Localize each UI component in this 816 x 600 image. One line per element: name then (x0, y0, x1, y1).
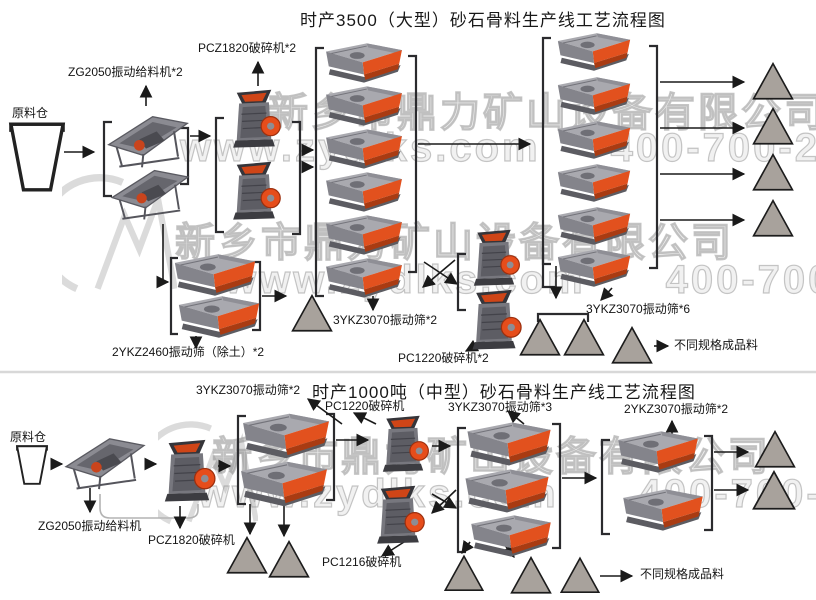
vibrating-screen (238, 460, 330, 508)
label-screen-2deck: 3YKZ3070振动筛*2 (196, 384, 300, 398)
label-secondary-crusher: PC1220破碎机*2 (398, 352, 489, 366)
vibrating-screen (548, 32, 640, 72)
vibrating-screen (548, 120, 640, 160)
stockpile-icon (752, 470, 796, 510)
stockpile-icon (290, 294, 334, 332)
label-secondary-crusher: PC1220破碎机 (325, 400, 404, 414)
stockpile-icon (560, 556, 600, 594)
vibrating-screen (176, 294, 262, 340)
vibrating-screen (320, 128, 408, 170)
vibrating-screen (548, 76, 640, 116)
stockpile-icon (752, 153, 794, 191)
stockpile-icon (444, 554, 484, 592)
stockpile-icon (518, 318, 562, 356)
vibrating-screen (320, 171, 408, 213)
vibrating-screen (614, 488, 712, 532)
stockpile-icon (268, 540, 310, 578)
vibrating-screen (320, 214, 408, 256)
label-soil-screen: 2YKZ2460振动筛（除土）*2 (112, 346, 264, 360)
vibrating-screen (548, 248, 640, 288)
hammer-crusher (222, 88, 286, 150)
label-feeder: ZG2050振动给料机*2 (68, 66, 183, 80)
hammer-crusher (376, 414, 430, 474)
hammer-crusher (464, 288, 524, 352)
vibrating-feeder (108, 168, 192, 222)
vibrating-screen (608, 430, 708, 474)
label-mid-screen: 3YKZ3070振动筛*2 (333, 314, 437, 328)
label-primary-crusher: PCZ1820破碎机 (148, 534, 235, 548)
label-product: 不同规格成品料 (674, 339, 758, 353)
vibrating-screen (172, 252, 258, 298)
vibrating-screen (462, 421, 556, 467)
label-feeder: ZG2050振动给料机 (38, 520, 141, 534)
hammer-crusher (158, 438, 216, 504)
stockpile-icon (752, 62, 794, 100)
label-screen-3deck: 3YKZ3070振动筛*3 (448, 401, 552, 415)
hammer-crusher (466, 228, 522, 288)
stockpile-icon (752, 107, 794, 145)
vibrating-screen (548, 163, 640, 203)
stockpile-icon (510, 556, 552, 594)
raw-material-bin (10, 444, 54, 486)
label-tertiary-crusher: PC1216破碎机 (322, 556, 401, 570)
label-product: 不同规格成品料 (640, 568, 724, 582)
stockpile-icon (610, 326, 654, 364)
vibrating-screen (320, 85, 408, 127)
vibrating-screen (320, 257, 408, 299)
vibrating-screen (464, 514, 558, 558)
vibrating-screen (240, 412, 332, 460)
top-title: 时产3500（大型）砂石骨料生产线工艺流程图 (300, 6, 666, 31)
stockpile-icon (562, 318, 606, 356)
vibrating-feeder (104, 114, 192, 170)
label-primary-crusher: PCZ1820破碎机*2 (198, 42, 296, 56)
process-flow-diagram: 新乡市鼎力矿山设备有限公司 www.zydlks.com400-700-2111… (0, 0, 816, 600)
vibrating-screen (548, 206, 640, 246)
label-raw-bin: 原料仓 (10, 431, 46, 445)
label-final-screen: 2YKZ3070振动筛*2 (624, 403, 728, 417)
vibrating-feeder (62, 436, 148, 492)
hammer-crusher (370, 484, 426, 546)
hammer-crusher (222, 160, 286, 222)
stockpile-icon (754, 430, 796, 468)
label-raw-bin: 原料仓 (12, 107, 48, 121)
vibrating-screen (320, 42, 408, 84)
vibrating-screen (460, 468, 554, 514)
stockpile-icon (752, 199, 794, 237)
label-product-screen: 3YKZ3070振动筛*6 (586, 303, 690, 317)
raw-material-bin (8, 120, 66, 194)
